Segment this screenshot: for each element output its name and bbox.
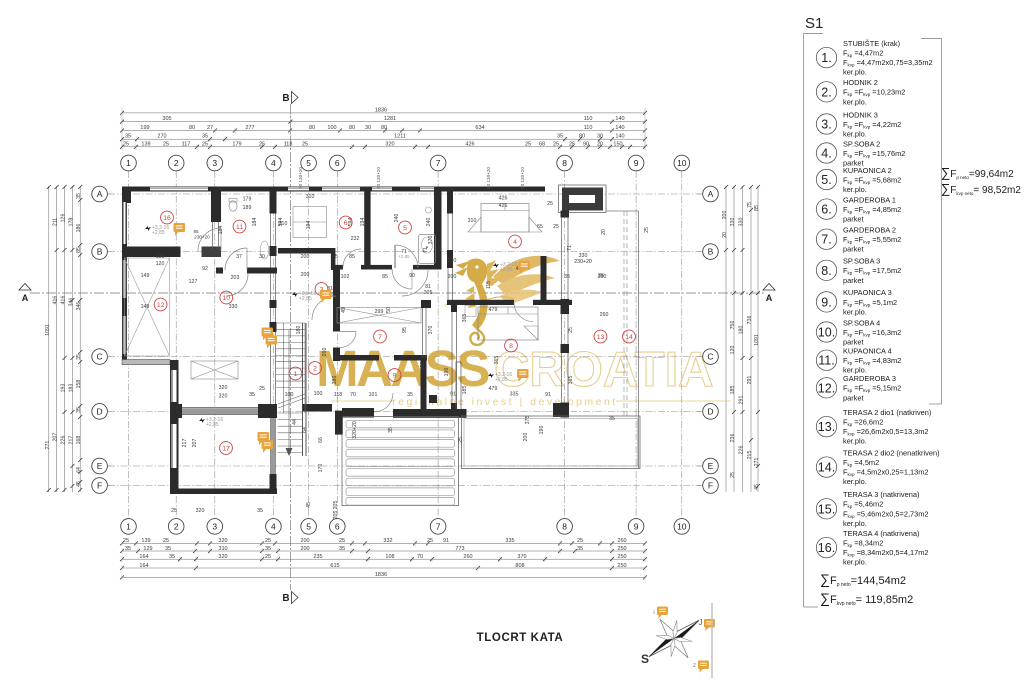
svg-text:194: 194 bbox=[360, 218, 366, 227]
svg-text:25: 25 bbox=[427, 538, 433, 544]
svg-text:85: 85 bbox=[349, 254, 355, 260]
svg-text:250: 250 bbox=[617, 546, 626, 552]
svg-text:291: 291 bbox=[747, 376, 753, 385]
svg-text:Fkvp =8,34m2x0,5=4,17m2: Fkvp =8,34m2x0,5=4,17m2 bbox=[843, 548, 929, 558]
svg-text:16: 16 bbox=[163, 215, 171, 222]
svg-text:170: 170 bbox=[318, 464, 324, 473]
svg-text:25: 25 bbox=[265, 554, 271, 560]
svg-text:7: 7 bbox=[378, 334, 382, 341]
svg-text:2.: 2. bbox=[821, 85, 831, 99]
svg-text:110: 110 bbox=[584, 116, 593, 122]
svg-text:380: 380 bbox=[332, 376, 338, 385]
svg-text:25: 25 bbox=[568, 327, 574, 333]
svg-text:TERASA 4 (natkrivena): TERASA 4 (natkrivena) bbox=[843, 529, 919, 538]
svg-text:2: 2 bbox=[313, 365, 317, 372]
svg-text:3: 3 bbox=[212, 158, 217, 168]
svg-text:9: 9 bbox=[393, 372, 397, 379]
svg-text:14: 14 bbox=[625, 334, 633, 341]
svg-text:25: 25 bbox=[553, 141, 559, 147]
svg-text:365: 365 bbox=[462, 314, 468, 323]
svg-text:310: 310 bbox=[306, 194, 315, 200]
svg-text:25: 25 bbox=[583, 189, 589, 195]
svg-text:6: 6 bbox=[335, 521, 340, 531]
svg-text:250: 250 bbox=[617, 554, 626, 560]
svg-text:330: 330 bbox=[739, 218, 745, 227]
svg-text:426: 426 bbox=[499, 196, 508, 202]
svg-text:71: 71 bbox=[423, 247, 429, 253]
svg-text:A: A bbox=[708, 189, 714, 199]
svg-text:416: 416 bbox=[61, 296, 67, 305]
svg-text:30: 30 bbox=[259, 254, 265, 260]
svg-text:A: A bbox=[97, 189, 103, 199]
svg-text:365: 365 bbox=[494, 356, 500, 365]
svg-text:370: 370 bbox=[517, 554, 526, 560]
svg-text:205: 205 bbox=[333, 511, 339, 520]
svg-text:20: 20 bbox=[601, 229, 607, 235]
svg-text:130: 130 bbox=[156, 254, 165, 260]
svg-text:139: 139 bbox=[141, 538, 150, 544]
svg-text:ker.plo.: ker.plo. bbox=[843, 130, 867, 139]
svg-text:parket: parket bbox=[843, 338, 864, 347]
svg-text:217: 217 bbox=[182, 439, 188, 448]
svg-text:4.: 4. bbox=[821, 147, 831, 161]
svg-text:179: 179 bbox=[232, 141, 241, 147]
svg-text:8: 8 bbox=[562, 158, 567, 168]
svg-text:207: 207 bbox=[192, 439, 198, 448]
svg-text:180: 180 bbox=[739, 326, 745, 335]
svg-text:10.: 10. bbox=[818, 326, 835, 340]
svg-text:S: S bbox=[641, 652, 649, 666]
svg-text:D: D bbox=[97, 406, 103, 416]
svg-text:139: 139 bbox=[141, 141, 150, 147]
svg-text:3.: 3. bbox=[821, 118, 831, 132]
svg-text:ker.plo.: ker.plo. bbox=[843, 68, 867, 77]
svg-text:320: 320 bbox=[219, 385, 228, 391]
svg-text:773: 773 bbox=[455, 546, 464, 552]
svg-text:SP.SOBA 3: SP.SOBA 3 bbox=[843, 257, 880, 266]
svg-text:66: 66 bbox=[318, 437, 324, 443]
svg-text:25: 25 bbox=[569, 141, 575, 147]
svg-text:25: 25 bbox=[259, 386, 265, 392]
svg-text:332: 332 bbox=[383, 538, 392, 544]
svg-text:299: 299 bbox=[375, 309, 384, 315]
svg-text:335: 335 bbox=[510, 392, 519, 398]
svg-text:TLOCRT KATA: TLOCRT KATA bbox=[477, 632, 564, 644]
svg-text:70: 70 bbox=[350, 392, 356, 398]
svg-text:Fkvp =4,5m2x0,25=1,13m2: Fkvp =4,5m2x0,25=1,13m2 bbox=[843, 468, 929, 478]
svg-text:1: 1 bbox=[126, 521, 131, 531]
svg-text:ker.plo.: ker.plo. bbox=[843, 477, 867, 486]
svg-text:HODNIK 2: HODNIK 2 bbox=[843, 78, 878, 87]
svg-text:35: 35 bbox=[76, 407, 82, 413]
svg-text:D: D bbox=[707, 406, 713, 416]
svg-text:S1: S1 bbox=[805, 15, 823, 32]
svg-text:35: 35 bbox=[165, 546, 171, 552]
svg-text:12.: 12. bbox=[818, 381, 835, 395]
svg-text:Fkp =Fkvp =5,55m2: Fkp =Fkvp =5,55m2 bbox=[843, 235, 901, 245]
svg-text:118: 118 bbox=[284, 141, 293, 147]
svg-text:90: 90 bbox=[583, 141, 589, 147]
svg-text:25: 25 bbox=[259, 141, 265, 147]
svg-text:1: 1 bbox=[294, 371, 298, 378]
svg-text:E: E bbox=[97, 461, 103, 471]
svg-text:12: 12 bbox=[157, 302, 165, 309]
svg-text:189: 189 bbox=[243, 205, 252, 211]
svg-text:25: 25 bbox=[644, 227, 650, 233]
svg-text:KUPAONICA 3: KUPAONICA 3 bbox=[843, 288, 892, 297]
svg-text:320: 320 bbox=[196, 508, 205, 514]
svg-text:193: 193 bbox=[61, 384, 67, 393]
svg-text:17: 17 bbox=[222, 445, 230, 452]
svg-text:240: 240 bbox=[426, 218, 432, 227]
svg-text:126: 126 bbox=[61, 214, 67, 223]
svg-text:68: 68 bbox=[539, 141, 545, 147]
svg-text:35: 35 bbox=[125, 134, 131, 140]
svg-text:217: 217 bbox=[68, 436, 74, 445]
svg-text:35: 35 bbox=[249, 392, 255, 398]
svg-text:91: 91 bbox=[545, 392, 551, 398]
svg-text:80 130+20: 80 130+20 bbox=[520, 167, 525, 189]
svg-text:615: 615 bbox=[330, 563, 339, 569]
svg-text:B: B bbox=[282, 593, 289, 604]
svg-text:1.: 1. bbox=[821, 51, 831, 65]
svg-text:7: 7 bbox=[436, 158, 441, 168]
svg-text:25: 25 bbox=[339, 538, 345, 544]
svg-text:49: 49 bbox=[341, 307, 347, 313]
svg-text:6: 6 bbox=[344, 220, 348, 227]
svg-text:3: 3 bbox=[212, 521, 217, 531]
svg-text:479: 479 bbox=[489, 386, 498, 392]
svg-text:parket: parket bbox=[843, 215, 864, 224]
svg-text:260: 260 bbox=[617, 538, 626, 544]
svg-text:260: 260 bbox=[463, 554, 472, 560]
svg-text:7.: 7. bbox=[821, 233, 831, 247]
svg-text:30: 30 bbox=[597, 134, 603, 140]
svg-text:179: 179 bbox=[243, 197, 252, 203]
svg-text:35: 35 bbox=[609, 416, 615, 422]
svg-text:4: 4 bbox=[271, 521, 276, 531]
svg-text:+2,85: +2,85 bbox=[206, 422, 219, 428]
svg-text:310: 310 bbox=[468, 218, 477, 224]
svg-text:207: 207 bbox=[53, 433, 59, 442]
svg-text:Fkvp =4,47m2x0,75=3,35m2: Fkvp =4,47m2x0,75=3,35m2 bbox=[843, 58, 933, 68]
svg-text:Fkp =Fkvp =4,22m2: Fkp =Fkvp =4,22m2 bbox=[843, 120, 901, 129]
svg-text:184: 184 bbox=[252, 218, 258, 227]
svg-text:1836: 1836 bbox=[375, 572, 387, 578]
svg-text:271: 271 bbox=[754, 458, 760, 467]
svg-text:127: 127 bbox=[189, 279, 198, 285]
svg-text:5: 5 bbox=[306, 158, 311, 168]
svg-text:TERASA 2 dio2 (nenatkriven): TERASA 2 dio2 (nenatkriven) bbox=[843, 448, 940, 457]
svg-text:35: 35 bbox=[564, 274, 570, 280]
svg-text:80: 80 bbox=[349, 125, 355, 131]
svg-text:365: 365 bbox=[568, 376, 574, 385]
svg-text:118: 118 bbox=[334, 392, 342, 398]
svg-text:158: 158 bbox=[76, 380, 82, 389]
svg-text:110: 110 bbox=[584, 125, 593, 131]
svg-text:9: 9 bbox=[634, 521, 639, 531]
svg-text:8: 8 bbox=[562, 521, 567, 531]
svg-text:1091: 1091 bbox=[45, 324, 51, 336]
svg-text:14.: 14. bbox=[818, 461, 835, 475]
svg-text:370: 370 bbox=[428, 326, 434, 335]
svg-text:71: 71 bbox=[567, 245, 573, 251]
svg-text:1211: 1211 bbox=[394, 134, 406, 140]
svg-text:F: F bbox=[97, 481, 102, 491]
svg-text:9.: 9. bbox=[821, 295, 831, 309]
svg-text:HODNIK 3: HODNIK 3 bbox=[843, 110, 878, 119]
svg-text:190: 190 bbox=[444, 368, 450, 377]
svg-text:35: 35 bbox=[202, 134, 208, 140]
svg-text:SP.SOBA 2: SP.SOBA 2 bbox=[843, 139, 880, 148]
svg-text:5: 5 bbox=[403, 225, 407, 232]
svg-text:226: 226 bbox=[61, 436, 67, 445]
svg-text:100: 100 bbox=[285, 392, 294, 398]
svg-text:101: 101 bbox=[369, 392, 378, 398]
svg-text:320: 320 bbox=[218, 538, 227, 544]
svg-text:129: 129 bbox=[143, 546, 152, 552]
svg-text:25: 25 bbox=[123, 141, 129, 147]
svg-text:164: 164 bbox=[139, 554, 148, 560]
svg-text:E: E bbox=[708, 461, 714, 471]
svg-text:8: 8 bbox=[509, 343, 513, 350]
svg-text:25: 25 bbox=[730, 472, 736, 478]
svg-text:85: 85 bbox=[76, 247, 82, 253]
svg-text:45: 45 bbox=[306, 502, 312, 508]
svg-text:Fkp =Fkvp =4,83m2: Fkp =Fkvp =4,83m2 bbox=[843, 356, 901, 366]
svg-text:ker.plo.: ker.plo. bbox=[843, 558, 867, 567]
svg-text:310: 310 bbox=[218, 546, 227, 552]
svg-text:25: 25 bbox=[525, 141, 531, 147]
svg-text:11: 11 bbox=[236, 224, 243, 231]
svg-text:194: 194 bbox=[306, 221, 312, 230]
svg-text:A: A bbox=[766, 293, 773, 303]
svg-text:186: 186 bbox=[76, 224, 82, 233]
svg-text:+2,85: +2,85 bbox=[152, 230, 165, 236]
svg-text:5: 5 bbox=[306, 521, 311, 531]
svg-text:25: 25 bbox=[577, 538, 583, 544]
svg-text:35: 35 bbox=[76, 193, 82, 199]
svg-text:Fkp =Fkvp =10,23m2: Fkp =Fkvp =10,23m2 bbox=[843, 88, 905, 98]
svg-text:200: 200 bbox=[722, 211, 728, 220]
svg-text:44: 44 bbox=[292, 419, 298, 425]
svg-text:168: 168 bbox=[76, 436, 82, 445]
svg-text:TERASA 2 dio1 (natkriven): TERASA 2 dio1 (natkriven) bbox=[843, 408, 931, 417]
svg-text:215: 215 bbox=[747, 451, 753, 460]
svg-text:164: 164 bbox=[139, 563, 148, 569]
svg-text:35: 35 bbox=[125, 546, 131, 552]
svg-text:346: 346 bbox=[68, 298, 74, 307]
svg-text:11.: 11. bbox=[818, 354, 834, 368]
svg-text:91: 91 bbox=[450, 392, 456, 398]
svg-text:STUBIŠTE (krak): STUBIŠTE (krak) bbox=[843, 39, 900, 48]
svg-text:320: 320 bbox=[219, 394, 228, 400]
svg-text:305: 305 bbox=[162, 116, 171, 122]
svg-text:85: 85 bbox=[754, 205, 760, 211]
svg-text:13.: 13. bbox=[818, 420, 835, 434]
svg-text:+2,85: +2,85 bbox=[299, 296, 312, 302]
svg-text:200: 200 bbox=[300, 546, 309, 552]
svg-text:7: 7 bbox=[436, 521, 441, 531]
svg-text:+2,85: +2,85 bbox=[495, 377, 508, 383]
svg-text:100: 100 bbox=[314, 391, 323, 397]
svg-text:1836: 1836 bbox=[375, 107, 387, 113]
svg-text:750: 750 bbox=[730, 321, 736, 330]
svg-text:808: 808 bbox=[515, 563, 524, 569]
svg-text:B: B bbox=[708, 247, 714, 257]
svg-text:479: 479 bbox=[489, 307, 498, 313]
svg-text:30: 30 bbox=[365, 125, 371, 131]
svg-text:25: 25 bbox=[265, 538, 271, 544]
svg-text:140: 140 bbox=[615, 125, 624, 131]
svg-text:320+20: 320+20 bbox=[352, 421, 358, 439]
svg-text:C: C bbox=[97, 352, 103, 362]
svg-text:10: 10 bbox=[677, 521, 687, 531]
svg-text:85: 85 bbox=[382, 274, 388, 280]
svg-text:GARDEROBA 2: GARDEROBA 2 bbox=[843, 226, 896, 235]
svg-text:1: 1 bbox=[126, 158, 131, 168]
svg-text:80 130+20: 80 130+20 bbox=[376, 167, 381, 189]
svg-text:230+20: 230+20 bbox=[194, 235, 210, 240]
svg-text:Fkp =Fkvp =5,15m2: Fkp =Fkvp =5,15m2 bbox=[843, 384, 901, 394]
svg-text:117: 117 bbox=[182, 141, 191, 147]
svg-text:z: z bbox=[693, 663, 696, 669]
svg-text:211: 211 bbox=[53, 218, 59, 226]
svg-text:25: 25 bbox=[553, 224, 559, 230]
svg-text:140: 140 bbox=[615, 134, 624, 140]
svg-text:5.: 5. bbox=[821, 173, 831, 187]
svg-text:ker.plo.: ker.plo. bbox=[843, 437, 867, 446]
svg-text:736: 736 bbox=[747, 316, 753, 325]
svg-text:232: 232 bbox=[351, 236, 360, 242]
svg-text:9: 9 bbox=[634, 158, 639, 168]
svg-text:108: 108 bbox=[385, 554, 394, 560]
svg-text:335: 335 bbox=[505, 538, 514, 544]
svg-text:260: 260 bbox=[600, 312, 609, 318]
svg-text:ker.plo.: ker.plo. bbox=[843, 307, 867, 316]
svg-text:330: 330 bbox=[730, 218, 736, 227]
svg-text:180: 180 bbox=[296, 326, 302, 335]
svg-text:45: 45 bbox=[754, 484, 760, 490]
svg-text:A: A bbox=[22, 293, 29, 303]
svg-text:149: 149 bbox=[141, 304, 150, 310]
svg-text:277: 277 bbox=[245, 125, 254, 131]
svg-text:8.: 8. bbox=[821, 264, 831, 278]
svg-text:102: 102 bbox=[341, 274, 350, 280]
svg-text:115: 115 bbox=[486, 281, 492, 289]
svg-text:184: 184 bbox=[218, 226, 224, 235]
svg-text:15.: 15. bbox=[818, 502, 835, 516]
svg-text:F: F bbox=[708, 481, 713, 491]
svg-text:594: 594 bbox=[278, 218, 284, 227]
svg-text:100: 100 bbox=[327, 125, 336, 131]
svg-text:64: 64 bbox=[76, 467, 82, 473]
svg-text:35: 35 bbox=[265, 546, 271, 552]
svg-text:80: 80 bbox=[579, 134, 585, 140]
svg-text:2: 2 bbox=[174, 158, 179, 168]
svg-text:80 130+20: 80 130+20 bbox=[298, 167, 303, 189]
svg-text:50: 50 bbox=[386, 307, 392, 313]
svg-text:120: 120 bbox=[420, 362, 426, 371]
svg-text:ker.plo.: ker.plo. bbox=[843, 519, 867, 528]
svg-text:185: 185 bbox=[462, 386, 468, 395]
svg-text:6: 6 bbox=[335, 158, 340, 168]
svg-text:91: 91 bbox=[443, 538, 449, 544]
svg-text:15: 15 bbox=[332, 254, 338, 260]
svg-text:+2,85: +2,85 bbox=[500, 267, 513, 273]
svg-text:ker.plo.: ker.plo. bbox=[843, 185, 867, 194]
svg-text:70: 70 bbox=[417, 554, 423, 560]
svg-text:240: 240 bbox=[394, 214, 400, 223]
svg-text:25: 25 bbox=[171, 508, 177, 514]
svg-text:35: 35 bbox=[257, 508, 263, 514]
svg-text:35: 35 bbox=[76, 354, 82, 360]
svg-text:185: 185 bbox=[730, 386, 736, 395]
svg-text:235: 235 bbox=[313, 554, 322, 560]
svg-text:149: 149 bbox=[141, 273, 150, 279]
svg-text:25: 25 bbox=[302, 141, 308, 147]
svg-text:25: 25 bbox=[163, 538, 169, 544]
svg-text:20: 20 bbox=[597, 141, 603, 147]
svg-text:+2,85: +2,85 bbox=[398, 254, 410, 259]
svg-text:4: 4 bbox=[513, 239, 517, 246]
svg-text:205: 205 bbox=[333, 501, 339, 510]
svg-text:parket: parket bbox=[843, 276, 864, 285]
svg-text:236: 236 bbox=[730, 434, 736, 443]
svg-text:426: 426 bbox=[499, 203, 508, 209]
svg-text:GARDEROBA 1: GARDEROBA 1 bbox=[843, 195, 896, 204]
svg-text:370: 370 bbox=[428, 236, 434, 245]
svg-text:64: 64 bbox=[302, 427, 308, 433]
svg-text:55: 55 bbox=[537, 224, 543, 230]
svg-text:35: 35 bbox=[169, 554, 175, 560]
svg-text:200: 200 bbox=[301, 254, 310, 260]
svg-text:GARDEROBA 3: GARDEROBA 3 bbox=[843, 374, 896, 383]
svg-text:250: 250 bbox=[617, 563, 626, 569]
svg-text:75: 75 bbox=[747, 202, 753, 208]
svg-text:25: 25 bbox=[202, 141, 208, 147]
svg-text:178: 178 bbox=[68, 218, 74, 227]
svg-text:330: 330 bbox=[229, 304, 238, 310]
svg-text:Fkp =Fkvp =5,68m2: Fkp =Fkvp =5,68m2 bbox=[843, 175, 901, 185]
svg-text:SP.SOBA 4: SP.SOBA 4 bbox=[843, 318, 880, 327]
svg-text:205: 205 bbox=[424, 290, 433, 296]
svg-text:45: 45 bbox=[76, 481, 82, 487]
svg-text:92: 92 bbox=[202, 266, 208, 272]
svg-text:35: 35 bbox=[557, 134, 563, 140]
svg-text:36: 36 bbox=[598, 273, 604, 279]
svg-text:ker.plo.: ker.plo. bbox=[843, 97, 867, 106]
svg-text:320: 320 bbox=[218, 554, 227, 560]
svg-text:B: B bbox=[97, 247, 103, 257]
svg-text:1091: 1091 bbox=[754, 334, 760, 346]
svg-text:20: 20 bbox=[722, 232, 728, 238]
svg-text:80: 80 bbox=[381, 125, 387, 131]
svg-text:226: 226 bbox=[739, 446, 745, 455]
svg-text:i: i bbox=[653, 610, 654, 616]
svg-text:203: 203 bbox=[231, 275, 240, 281]
svg-text:271: 271 bbox=[45, 441, 51, 450]
svg-text:27: 27 bbox=[207, 125, 213, 131]
svg-text:KUPAONICA 4: KUPAONICA 4 bbox=[843, 347, 892, 356]
svg-text:416: 416 bbox=[53, 296, 59, 305]
svg-text:25: 25 bbox=[123, 538, 129, 544]
svg-text:Fkp =Fkvp =16,3m2: Fkp =Fkvp =16,3m2 bbox=[843, 328, 901, 338]
svg-text:200: 200 bbox=[448, 274, 457, 280]
svg-text:1281: 1281 bbox=[384, 116, 396, 122]
svg-text:parket: parket bbox=[843, 393, 864, 402]
svg-text:200: 200 bbox=[300, 538, 309, 544]
